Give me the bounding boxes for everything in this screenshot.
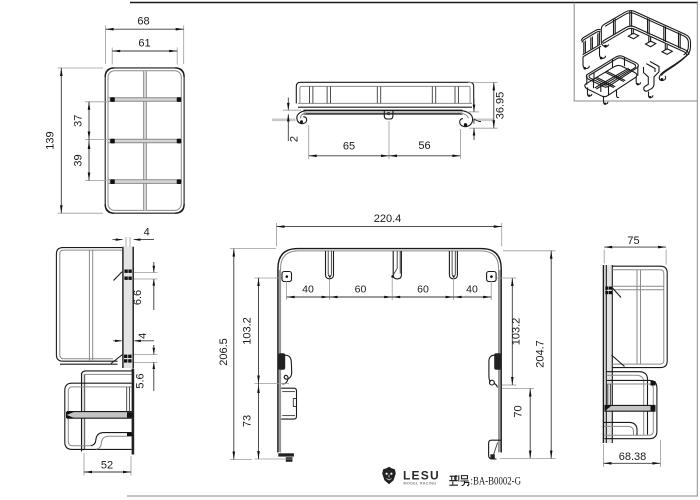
svg-text:61: 61 — [138, 37, 150, 49]
svg-text:40: 40 — [302, 284, 314, 296]
svg-text:5.6: 5.6 — [135, 373, 147, 388]
svg-text:52: 52 — [101, 460, 113, 472]
svg-text:68: 68 — [137, 16, 149, 28]
svg-text:2: 2 — [289, 136, 301, 142]
svg-text:4: 4 — [137, 333, 149, 339]
svg-text:36.95: 36.95 — [495, 92, 507, 120]
svg-text:220.4: 220.4 — [374, 213, 402, 225]
svg-text:60: 60 — [417, 284, 429, 296]
svg-text:4: 4 — [144, 226, 150, 238]
svg-text:103.2: 103.2 — [242, 317, 254, 345]
svg-text:206.5: 206.5 — [218, 338, 230, 366]
svg-text:139: 139 — [45, 131, 57, 149]
svg-text:68.38: 68.38 — [619, 451, 647, 463]
svg-text:40: 40 — [466, 284, 478, 296]
svg-text:39: 39 — [73, 154, 85, 166]
svg-text:70: 70 — [513, 405, 525, 417]
svg-text:56: 56 — [418, 140, 430, 152]
svg-text::BA-B0002-G: :BA-B0002-G — [471, 476, 522, 488]
svg-text:MODEL RACING: MODEL RACING — [404, 481, 437, 485]
svg-text:65: 65 — [343, 141, 355, 153]
svg-text:60: 60 — [355, 284, 367, 296]
svg-text:6.6: 6.6 — [132, 290, 144, 305]
svg-text:73: 73 — [242, 415, 254, 427]
svg-text:7: 7 — [472, 118, 484, 124]
svg-text:37: 37 — [73, 115, 85, 127]
svg-text:204.7: 204.7 — [535, 340, 547, 368]
svg-text:75: 75 — [627, 235, 639, 247]
svg-text:103.2: 103.2 — [511, 318, 523, 346]
